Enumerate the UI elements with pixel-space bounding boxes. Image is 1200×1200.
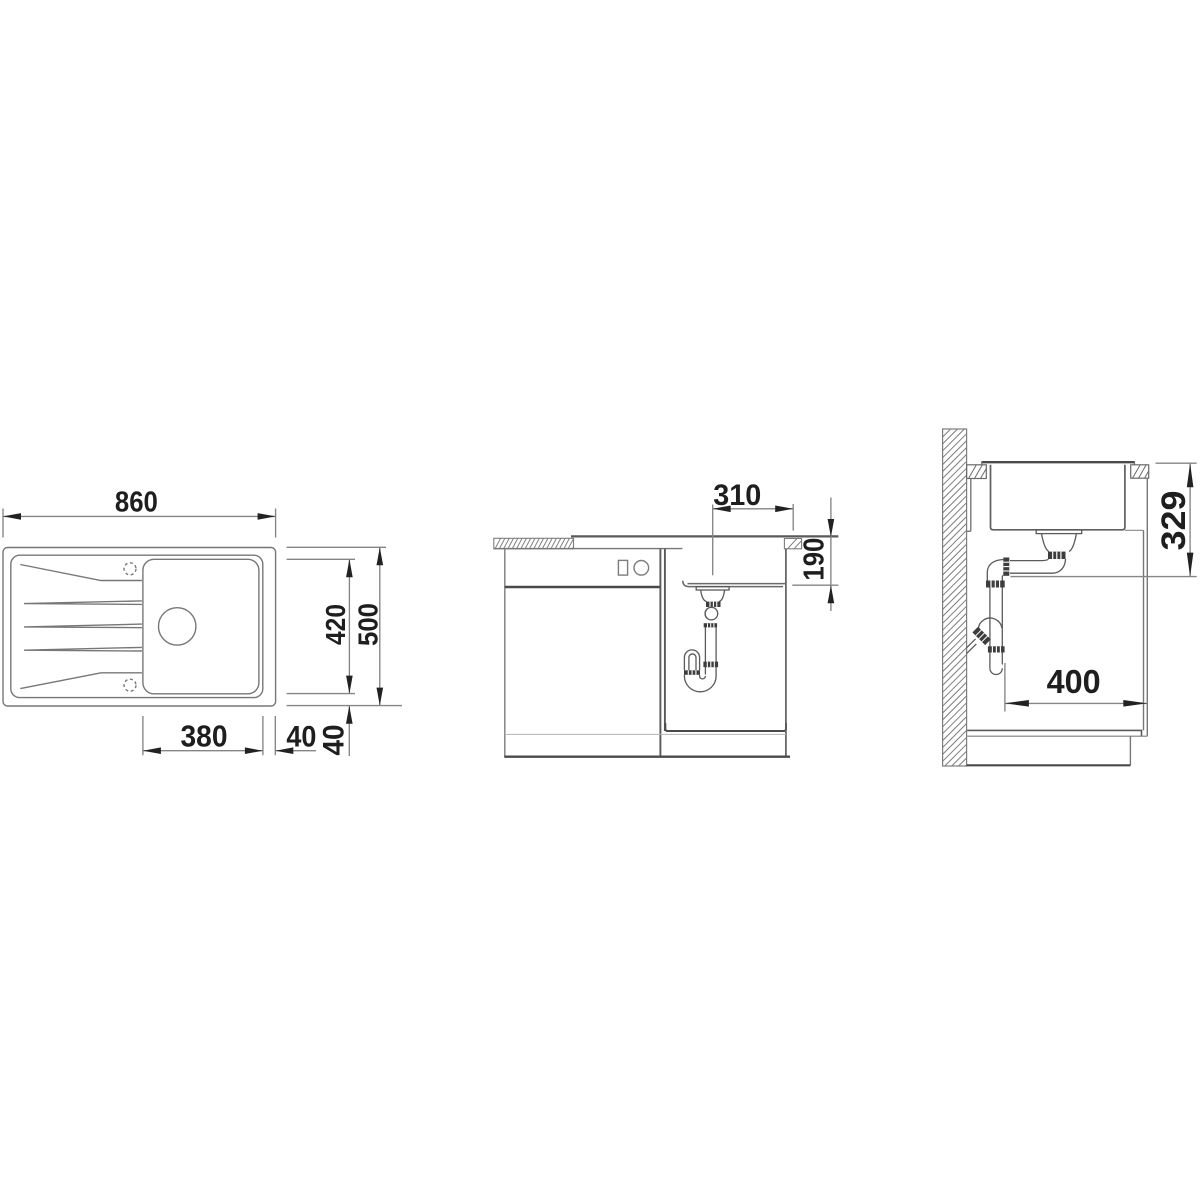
svg-text:380: 380	[181, 719, 228, 754]
svg-text:40: 40	[318, 725, 351, 756]
svg-text:329: 329	[1155, 491, 1193, 551]
svg-text:310: 310	[713, 479, 761, 512]
svg-text:500: 500	[353, 603, 384, 646]
svg-text:860: 860	[115, 487, 158, 519]
svg-text:190: 190	[798, 538, 830, 581]
svg-text:40: 40	[286, 721, 316, 754]
svg-text:420: 420	[320, 604, 351, 645]
svg-text:400: 400	[1047, 663, 1101, 700]
